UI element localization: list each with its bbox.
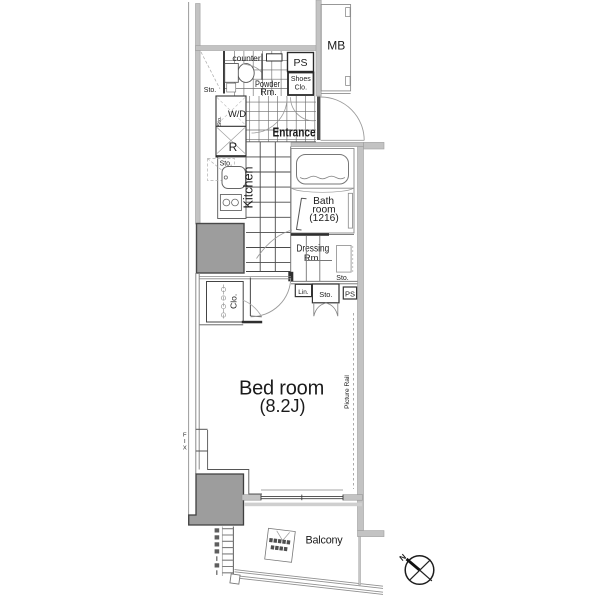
svg-text:R: R [229, 140, 238, 154]
svg-text:Sto.: Sto. [319, 290, 332, 299]
svg-text:Sto.: Sto. [336, 275, 349, 282]
svg-text:Lin.: Lin. [298, 289, 309, 296]
svg-text:Kitchen: Kitchen [242, 166, 256, 208]
svg-text:F: F [183, 433, 187, 439]
svg-text:PS: PS [293, 57, 307, 69]
svg-text:N: N [398, 552, 408, 563]
svg-text:Entrance: Entrance [273, 127, 316, 140]
svg-text:Clo.: Clo. [229, 294, 239, 309]
svg-text:Rm.: Rm. [260, 87, 277, 97]
svg-text:(1216): (1216) [309, 213, 338, 224]
svg-text:counter: counter [232, 53, 261, 63]
svg-text:Shoes: Shoes [291, 76, 311, 83]
svg-text:Sto.: Sto. [204, 87, 217, 94]
svg-text:W/D: W/D [228, 109, 246, 119]
svg-text:I: I [184, 439, 186, 445]
svg-text:X: X [183, 446, 187, 452]
svg-text:Balcony: Balcony [305, 535, 343, 547]
svg-text:(8.2J): (8.2J) [259, 396, 305, 416]
svg-text:MB: MB [327, 39, 345, 53]
svg-text:PS: PS [345, 289, 355, 298]
svg-text:Picture Rail: Picture Rail [344, 375, 351, 409]
svg-text:Clo.: Clo. [295, 84, 308, 91]
svg-text:Sto.: Sto. [217, 116, 223, 127]
